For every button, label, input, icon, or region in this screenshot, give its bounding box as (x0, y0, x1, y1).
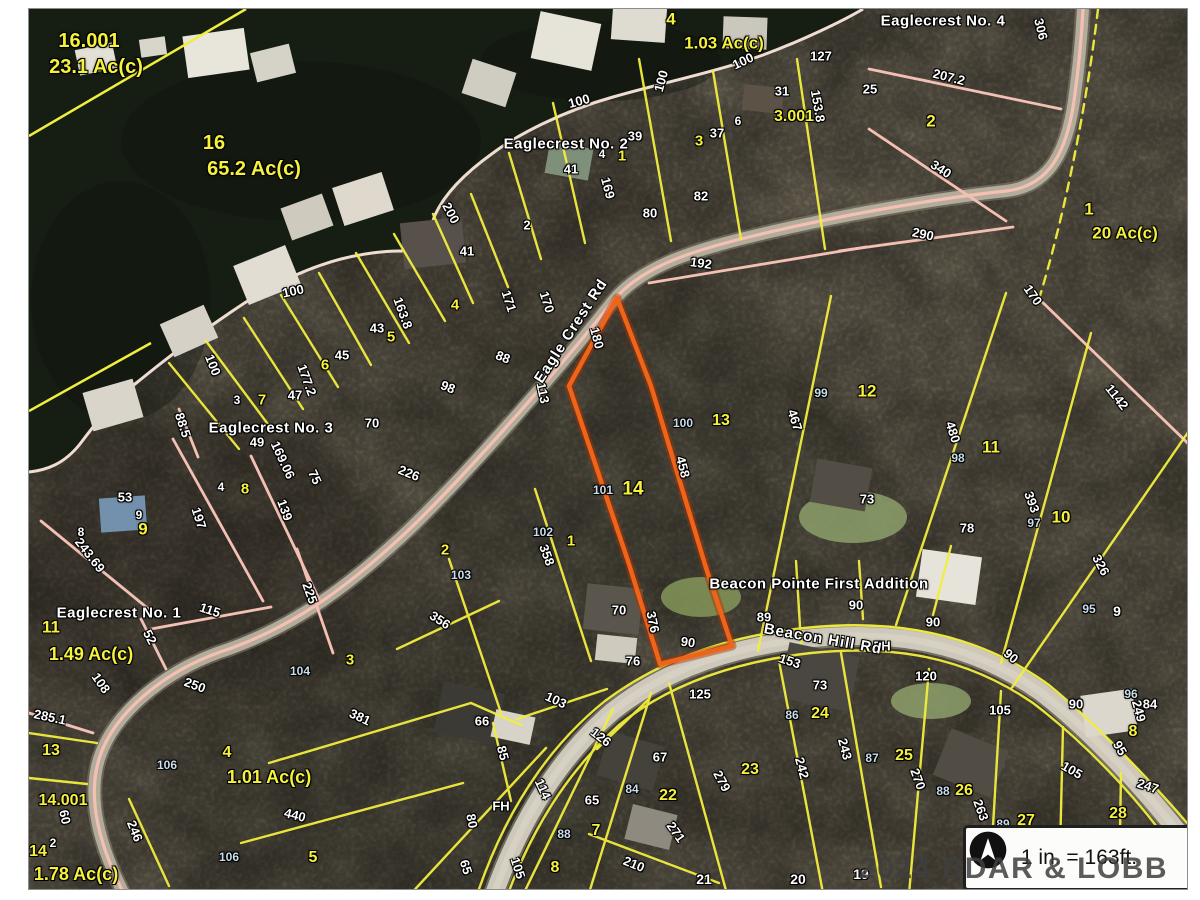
map-stage: 16.00123.1 Ac(c)1665.2 Ac(c)41.03 Ac(c)1… (28, 8, 1188, 890)
aerial-basemap (28, 8, 1188, 890)
north-arrow-icon (966, 828, 1010, 872)
parcel-map[interactable]: 16.00123.1 Ac(c)1665.2 Ac(c)41.03 Ac(c)1… (28, 8, 1188, 890)
scale-box: 1 in. = 163ft. (963, 825, 1188, 890)
scale-text: 1 in. = 163ft. (1021, 846, 1137, 870)
